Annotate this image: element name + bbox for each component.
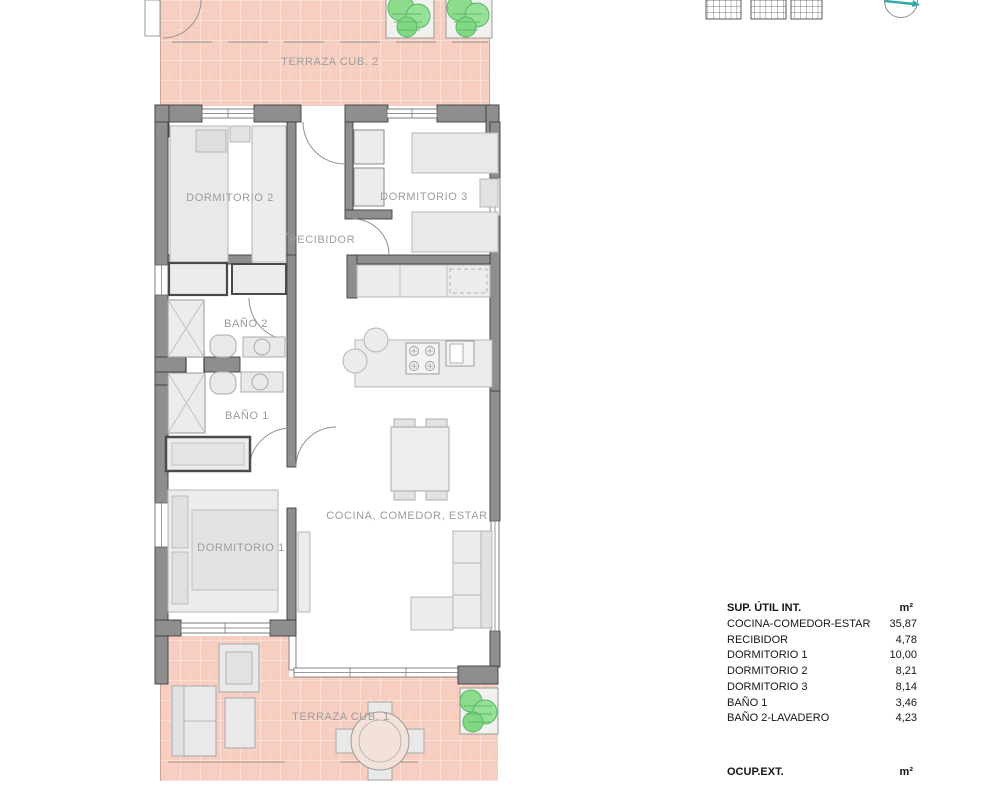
table-row: DORMITORIO 1 10,00: [727, 648, 917, 664]
dining-set: [391, 419, 449, 500]
terrace-2-area: [145, 0, 492, 106]
laundry-closet-units: [169, 263, 286, 295]
ext-table-unit: m²: [900, 764, 917, 780]
area-table-title: SUP. ÚTIL INT.: [727, 600, 801, 616]
stove-icon: [406, 343, 439, 374]
pergola-grid-icon: [751, 0, 786, 19]
area-table-unit: m²: [900, 600, 917, 616]
exterior-area-table: OCUP.EXT. m²: [727, 764, 917, 780]
table-row: BAÑO 1 3,46: [727, 696, 917, 712]
table-row: COCINA-COMEDOR-ESTAR 35,87: [727, 617, 917, 633]
room-label-cocina: COCINA, COMEDOR, ESTAR: [326, 510, 488, 522]
table-row: BAÑO 2-LAVADERO 4,23: [727, 711, 917, 727]
table-row: DORMITORIO 3 8,14: [727, 680, 917, 696]
room-label-dormitorio1: DORMITORIO 1: [197, 542, 285, 554]
sink-icon: [446, 341, 474, 366]
kitchen-furniture: [343, 265, 492, 387]
bathroom1-fixtures: [168, 372, 283, 433]
interior-area-table: SUP. ÚTIL INT. m² COCINA-COMEDOR-ESTAR 3…: [727, 600, 917, 727]
room-label-terraza2: TERRAZA CUB. 2: [281, 56, 379, 68]
sofa: [411, 531, 492, 630]
room-label-dormitorio2: DORMITORIO 2: [186, 192, 274, 204]
north-compass-icon: [885, 0, 921, 18]
table-row: RECIBIDOR 4,78: [727, 633, 917, 649]
room-label-recibidor: RECIBIDOR: [289, 234, 356, 246]
room-label-bano2: BAÑO 2: [224, 318, 268, 330]
plant-icon: [386, 0, 434, 38]
ext-table-title: OCUP.EXT.: [727, 764, 784, 780]
table-row: DORMITORIO 2 8,21: [727, 664, 917, 680]
room-label-terraza1: TERRAZA CUB. 1: [292, 711, 390, 723]
plant-icon: [460, 688, 498, 734]
room-label-dormitorio3: DORMITORIO 3: [380, 191, 468, 203]
outdoor-sofa: [172, 686, 216, 756]
plant-icon: [446, 0, 492, 38]
pergola-grid-icon: [706, 0, 741, 19]
outdoor-armchair-cushion: [226, 652, 252, 684]
floor-plan-page: TERRAZA CUB. 2 DORMITORIO 2 RECIBIDOR DO…: [0, 0, 989, 785]
room-label-bano1: BAÑO 1: [225, 410, 269, 422]
outdoor-ottoman: [225, 698, 255, 748]
pergola-grid-icon: [791, 0, 822, 19]
